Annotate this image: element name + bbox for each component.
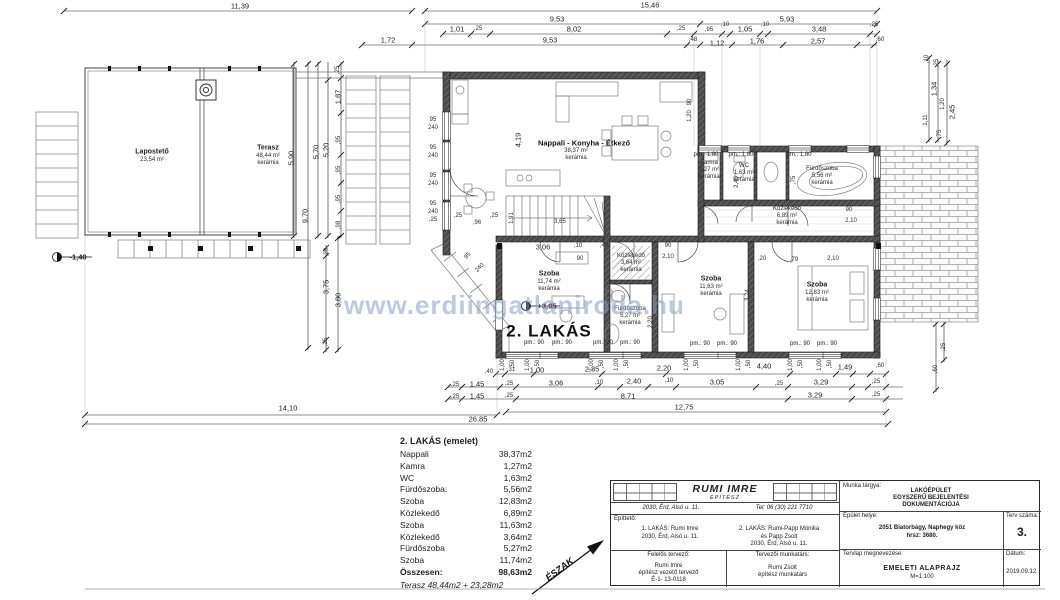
dim-label: ,10 xyxy=(574,243,582,249)
dim-label: 1,00 xyxy=(525,359,531,371)
dim-label: ,25 xyxy=(323,338,329,346)
dim-label: 2,40 xyxy=(734,176,740,188)
dim-label: 9,70 xyxy=(301,209,309,224)
dim-label: pm.: 90 xyxy=(690,341,710,347)
dim-label: 5,90 xyxy=(287,151,295,166)
dim-label: 2,10 xyxy=(827,256,839,262)
dim-label: ,25 xyxy=(454,213,462,219)
dim-label: 11,74 m² xyxy=(537,279,560,285)
dim-label: pm.: 90 xyxy=(552,340,572,346)
room-list-row: Fürdőszoba5,27m2 xyxy=(400,543,532,555)
dim-label: pm.: 90 xyxy=(524,340,544,346)
dim-label: 11,63 m² xyxy=(699,284,722,290)
dim-label: kerámia xyxy=(811,180,832,186)
dim-label: 1,20 xyxy=(940,98,946,110)
dim-label: 15,46 xyxy=(641,1,660,9)
dim-label: 2,10 xyxy=(845,218,857,224)
dim-label: 5,93 xyxy=(780,15,795,23)
dim-label: 6,89 m² xyxy=(777,213,797,219)
room-label-kozlekedo-2: Közlekedő xyxy=(617,253,645,259)
room-list-row: Fürdőszoba:5,56m2 xyxy=(400,484,532,496)
dim-label: pm.: 90 xyxy=(717,341,737,347)
dim-label: 3,06 xyxy=(536,243,551,251)
dim-label: 90 xyxy=(577,256,584,262)
dim-label: ,95 xyxy=(336,136,342,144)
dim-label: 26,85 xyxy=(469,415,488,423)
dim-label: pm.: 1,80 xyxy=(728,152,753,158)
client-label: Építtető: xyxy=(614,516,636,522)
dim-label: 3,80 xyxy=(334,293,342,308)
subject-text: LAKÓÉPÜLET EGYSZERŰ BEJELENTÉSI DOKUMENT… xyxy=(851,488,1011,509)
dim-label: ,60 xyxy=(876,37,884,43)
location-label: Épület helye: xyxy=(843,513,878,519)
dim-label: ,98 xyxy=(336,221,342,229)
date-value: 2019.09.12. xyxy=(1003,569,1041,575)
room-list-row: Szoba12,83m2 xyxy=(400,496,532,508)
dim-label: 12,75 xyxy=(675,403,694,411)
dim-label: 3,06 xyxy=(549,379,564,387)
dim-label: ,25 xyxy=(490,213,498,219)
dim-label: 1,00 xyxy=(614,359,620,371)
dim-label: kerámia xyxy=(776,220,797,226)
dim-label: 1,72 xyxy=(381,36,396,44)
dim-label: 240 xyxy=(428,153,438,159)
dim-label: 1,27 m² xyxy=(699,167,719,173)
dim-label: pm.: 90 xyxy=(817,341,837,347)
dim-label: ,25 xyxy=(429,217,437,223)
dim-label: 38,37 m² xyxy=(564,148,588,154)
dim-label: 3,48 xyxy=(812,25,827,33)
dim-label: 1,87 xyxy=(334,90,342,105)
dim-label: 240 xyxy=(428,181,438,187)
room-label-terasz: Terasz xyxy=(257,145,279,152)
dim-label: ,95 xyxy=(336,195,342,203)
dim-label: ,49 xyxy=(600,243,608,249)
dim-label: ,10 xyxy=(665,378,673,384)
dim-label: pm.: 90 xyxy=(790,341,810,347)
room-label-wc: WC xyxy=(739,163,749,169)
dim-label: ,10 xyxy=(595,380,603,386)
client-2: 2. LAKÁS: Rumi-Papp Mónika és Papp Zsolt… xyxy=(723,526,835,549)
dim-label: 8,02 xyxy=(567,25,582,33)
dim-label: 1,11 xyxy=(923,114,929,125)
dim-label: 1,76 xyxy=(750,37,765,45)
room-label-nappali: Nappali - Konyha - Étkező xyxy=(538,139,630,147)
dim-label: ,50 xyxy=(694,360,700,368)
designer-info: Rumi Imre építész vezető tervező É-1- 13… xyxy=(611,563,726,584)
dim-label: ,25 xyxy=(677,26,685,32)
dim-label: 5,56 m² xyxy=(812,173,832,179)
dim-label: 90 xyxy=(665,243,672,249)
watermark: www.erdiingatlaniroda.hu xyxy=(344,290,685,321)
dim-label: 3,29 xyxy=(814,378,829,386)
stove-icon xyxy=(196,80,216,100)
room-list-row: Közlekedő3,64m2 xyxy=(400,532,532,544)
dim-label: ,75 xyxy=(791,176,797,184)
brick-paving xyxy=(880,146,978,322)
architect-address: 2030, Érd, Alsó u. 11. xyxy=(613,505,729,511)
architect-title: ÉPÍTÉSZ xyxy=(677,495,773,501)
dim-label: 3,24 xyxy=(745,289,751,301)
dim-label: 240 xyxy=(428,209,438,215)
dim-label: 9,53 xyxy=(543,36,558,44)
dim-label: 1,00 xyxy=(589,359,595,371)
room-label-szoba-3: Szoba xyxy=(807,282,828,289)
plan-no-label: Terv száma: xyxy=(1006,513,1038,519)
dim-label: ,10 xyxy=(924,55,930,63)
room-list-terasz-note: Terasz 48,44m2 + 23,28m2 xyxy=(400,579,532,591)
dim-label: 9,53 xyxy=(550,15,565,23)
logo-grid xyxy=(613,483,677,501)
designer-label: Felelős tervező: xyxy=(611,552,726,558)
dim-label: kerámia xyxy=(620,267,641,273)
dim-label: ,25 xyxy=(451,394,459,400)
dim-label: 1,00 xyxy=(684,359,690,371)
dim-label: ,79 xyxy=(790,257,798,263)
dim-label: pm.: 1,80 xyxy=(786,152,811,158)
client-1: 1. LAKÁS: Rumi Imre 2030, Érd, Alsó u. 1… xyxy=(619,526,721,541)
dim-label: ,50 xyxy=(599,360,605,368)
architect-phone: Tel: 06 (30) 221 7710 xyxy=(731,505,837,511)
dim-label: ,60 xyxy=(876,363,884,369)
dim-label: 1,45 xyxy=(470,380,485,388)
dim-label: 2,10 xyxy=(662,254,674,260)
dim-label: kerámia xyxy=(257,160,278,166)
location-text: 2051 Biatorbágy, Naphegy köz hrsz: 3680. xyxy=(843,525,1001,540)
dim-label: 4,19 xyxy=(514,133,522,148)
dim-label: ,10 xyxy=(761,22,769,28)
room-list-row: Kamra1,27m2 xyxy=(400,461,532,473)
dim-label: 1,34 xyxy=(930,82,938,97)
dim-label: 11,39 xyxy=(231,2,249,10)
dim-label: 1,01 xyxy=(450,25,465,33)
dim-label: ,25 xyxy=(775,381,783,387)
dim-label: ,50 xyxy=(798,360,804,368)
dim-label: 3,64 m² xyxy=(621,260,641,266)
dim-label: 1,00 xyxy=(736,359,742,371)
dim-label: kerámia xyxy=(698,174,719,180)
dim-label: 1,20 xyxy=(687,110,693,122)
dim-label: ,50 xyxy=(624,360,630,368)
dim-label: ,25 xyxy=(872,392,880,398)
dim-label: ,96 xyxy=(473,220,481,226)
dim-label: 12,83 m² xyxy=(805,290,829,296)
dim-label: ,20 xyxy=(758,256,766,262)
room-label-szoba-2: Szoba xyxy=(701,276,722,283)
dim-label: 48,44 m² xyxy=(256,153,280,159)
dim-label: ,75 xyxy=(937,130,943,138)
dim-label: ,50 xyxy=(510,360,516,368)
room-label-furdoszoba-1: Fürdőszoba xyxy=(806,166,838,172)
dim-label: 95 xyxy=(430,173,437,179)
dim-label: 1,00 xyxy=(817,359,823,371)
dim-label: ,48 xyxy=(689,37,697,43)
apartment-label: 2. LAKÁS xyxy=(506,323,591,340)
room-list-total: Összesen:98,63m2 xyxy=(400,567,532,579)
dim-label: ,95 xyxy=(336,166,342,174)
dim-label: 2,20 xyxy=(657,364,672,372)
room-label-laposteto: Lapostető xyxy=(135,149,168,156)
dim-label: 3,65 xyxy=(554,219,566,225)
room-list-row: Szoba11,63m2 xyxy=(400,520,532,532)
logo-grid xyxy=(773,483,837,501)
dim-label: 23,54 m² xyxy=(140,157,164,163)
dim-label: ,25 xyxy=(451,382,459,388)
dim-label: 1,00 xyxy=(500,359,506,371)
architect-name: RUMI IMRE xyxy=(677,483,773,495)
dim-label: ,50 xyxy=(746,360,752,368)
dim-label: ,25 xyxy=(872,379,880,385)
dim-label: 3,75 xyxy=(322,280,330,295)
dim-label: pm.: 1,80 xyxy=(693,152,718,158)
dim-label: 5,20 xyxy=(322,143,330,158)
room-list-row: Nappali38,37m2 xyxy=(400,449,532,461)
dim-label: ,50 xyxy=(535,360,541,368)
room-area-list: 2. LAKÁS (emelet) Nappali38,37m2Kamra1,2… xyxy=(400,436,532,591)
dim-label: 1,45 xyxy=(470,392,485,400)
dim-label: 5,70 xyxy=(312,145,320,160)
room-label-szoba-1: Szoba xyxy=(539,271,560,278)
dim-label: 1,12 xyxy=(710,39,725,47)
dim-label: ,25 xyxy=(335,66,341,74)
dim-label: ,60 xyxy=(933,365,939,373)
dim-label: ,25 xyxy=(934,59,940,67)
dim-label: 1,49 xyxy=(838,363,853,371)
level-marker-label: -1,40 xyxy=(69,253,86,261)
dim-label: kerámia xyxy=(565,155,586,161)
dim-label: ,25 xyxy=(870,22,878,28)
plan-no: 3. xyxy=(1003,525,1041,539)
room-list-row: Szoba11,74m2 xyxy=(400,555,532,567)
collab-info: Rumi Zsolt építész munkatárs xyxy=(726,565,839,579)
dim-label: ,25 xyxy=(474,26,482,32)
dim-label: 95 xyxy=(430,117,437,123)
dim-label: ,25 xyxy=(941,343,947,351)
room-label-kozlekedo-1: Közlekedő xyxy=(773,206,801,212)
date-label: Dátum: xyxy=(1006,551,1025,557)
sheet-text: EMELETI ALAPRAJZ M=1:100 xyxy=(843,565,1001,581)
dim-label: 14,10 xyxy=(279,404,298,412)
dim-label: pm.: 90 xyxy=(593,340,613,346)
room-list-row: Közlekedő6,89m2 xyxy=(400,508,532,520)
dim-label: ,25 xyxy=(505,393,513,399)
dim-label: kerámia xyxy=(806,297,827,303)
title-block: RUMI IMRE ÉPÍTÉSZ 2030, Érd, Alsó u. 11.… xyxy=(610,480,1040,586)
dim-label: 95 xyxy=(430,201,437,207)
dim-label: 1,91 xyxy=(509,212,515,224)
dim-label: ,25 xyxy=(505,381,513,387)
collab-label: Tervezői munkatárs: xyxy=(726,552,839,558)
room-list-title: 2. LAKÁS (emelet) xyxy=(400,436,532,446)
dim-label: ,95 xyxy=(705,27,713,33)
dim-label: 90 xyxy=(846,207,853,213)
dim-label: 1,00 xyxy=(788,359,794,371)
dim-label: pm.: 90 xyxy=(620,340,640,346)
room-label-kamra: Kamra xyxy=(700,160,718,166)
dim-label: ,20 xyxy=(324,248,330,256)
room-list-row: WC1,63m2 xyxy=(400,473,532,485)
dim-label: ,40 xyxy=(485,369,493,375)
dim-label: 2,57 xyxy=(811,37,826,45)
dim-label: 3,05 xyxy=(710,378,725,386)
dim-label: 240 xyxy=(428,125,438,131)
dim-label: ,10 xyxy=(721,22,729,28)
sheet-label: Tervlap megnevezése: xyxy=(843,551,903,557)
dim-label: kerámia xyxy=(700,291,721,297)
dim-label: 1,05 xyxy=(738,25,753,33)
dim-label: 4,40 xyxy=(757,362,772,370)
dim-label: 2,45 xyxy=(948,105,956,120)
dim-label: 90 xyxy=(687,99,693,106)
dim-label: 8,71 xyxy=(621,392,636,400)
floor-plan-canvas: 11,3915,469,535,931,01,258,02,25,95,101,… xyxy=(0,0,1060,600)
dim-label: ,50 xyxy=(827,360,833,368)
dim-label: 95 xyxy=(430,145,437,151)
dim-label: 3,29 xyxy=(808,391,823,399)
dim-label: 2,40 xyxy=(627,377,642,385)
